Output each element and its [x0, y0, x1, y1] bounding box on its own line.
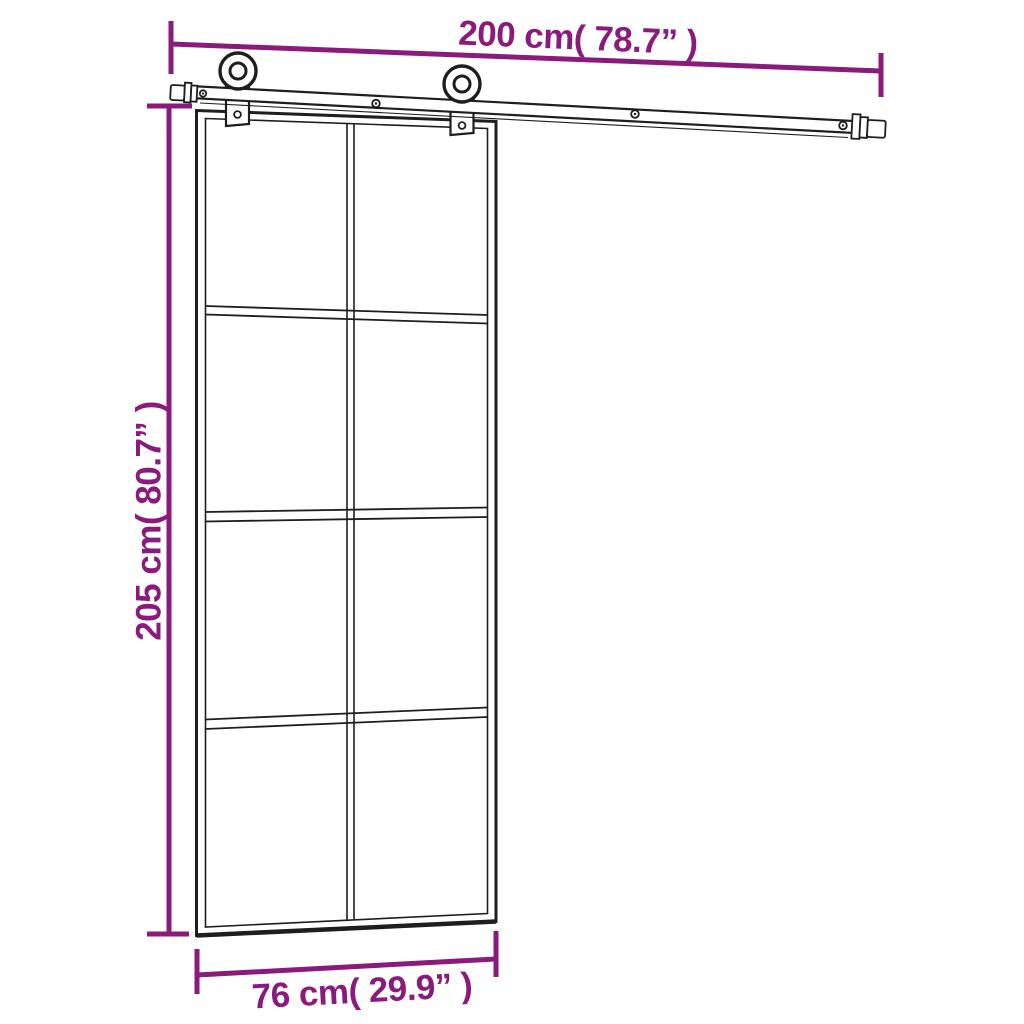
end-stop-right-cap	[867, 120, 886, 138]
door-height-label: 205 cm( 80.7” )	[130, 401, 169, 641]
screw-center-dot	[634, 113, 636, 115]
door	[197, 111, 497, 936]
screw-center-dot	[202, 92, 204, 94]
dimension-door-height: 205 cm( 80.7” )	[130, 106, 193, 934]
screw-center-dot	[842, 124, 844, 126]
product-image: 200 cm( 78.7” ) 205 cm( 80.7” ) 76 cm( 2…	[0, 0, 1024, 1024]
dimension-rail-width: 200 cm( 78.7” )	[171, 14, 881, 97]
dimension-door-width: 76 cm( 29.9” )	[197, 931, 496, 1016]
roller-hub-icon	[454, 76, 470, 92]
door-width-label: 76 cm( 29.9” )	[251, 966, 473, 1017]
strap-bolt-icon	[234, 111, 241, 118]
rail-end-stop-left	[170, 82, 197, 103]
screw-center-dot	[375, 102, 377, 104]
roller-hub-icon	[230, 63, 246, 79]
end-stop-left-cap	[170, 85, 185, 101]
end-stop-left-collar	[191, 85, 198, 101]
sliding-door-dimension-diagram: 200 cm( 78.7” ) 205 cm( 80.7” ) 76 cm( 2…	[0, 0, 1024, 1024]
strap-bolt-icon	[459, 122, 466, 129]
rail-end-stop-right	[851, 114, 886, 140]
